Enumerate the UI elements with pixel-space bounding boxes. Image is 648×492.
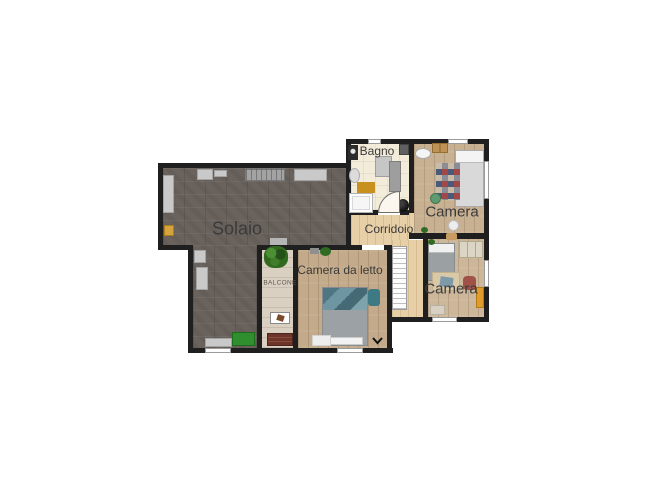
bathtub: [349, 193, 373, 213]
room-label-bagno: Bagno: [360, 144, 395, 158]
wall-bagno-camera-divider: [409, 139, 414, 213]
chevron-door-icon: [372, 336, 383, 345]
storage-crate: [270, 312, 290, 324]
plant: [421, 227, 428, 233]
storage-items: [430, 305, 445, 315]
stairs: [392, 246, 407, 310]
bed-pillow: [456, 151, 483, 163]
wall-balcone-left: [257, 245, 262, 353]
window-camera-bottom-south: [432, 317, 457, 322]
wall-solaio-notch-v: [188, 245, 193, 353]
side-table: [310, 248, 319, 254]
desk-chair: [446, 233, 457, 240]
green-rug: [232, 332, 255, 346]
plant: [428, 239, 435, 245]
shelf: [205, 338, 232, 347]
shelf: [197, 169, 213, 180]
shelf: [194, 250, 206, 263]
wardrobe: [458, 241, 483, 258]
crate-item: [276, 314, 285, 322]
bed-pillow: [429, 244, 454, 253]
room-label-camera-da-letto: Camera da letto: [297, 263, 382, 277]
dresser: [432, 143, 448, 153]
room-label-balcone: BALCONE: [263, 280, 296, 287]
room-label-corridoio: Corridoio: [365, 222, 414, 236]
bench-slab: [270, 238, 287, 245]
window-solaio-south: [205, 348, 231, 353]
room-label-camera-top: Camera: [425, 204, 478, 221]
shelf: [163, 175, 174, 213]
shower-column: [389, 161, 401, 192]
wall-balcone-right: [293, 245, 298, 353]
shelf: [294, 169, 327, 181]
washing-machine: [348, 145, 358, 160]
floorplan: Solaio Bagno Corridoio Camera Camera Cam…: [158, 139, 489, 353]
room-label-solaio: Solaio: [212, 219, 262, 240]
cabinet: [399, 144, 409, 155]
room-label-camera-bottom: Camera: [424, 281, 477, 298]
window-camera-top-right: [484, 161, 489, 199]
bed-pillows: [323, 288, 367, 310]
floorplan-canvas: Solaio Bagno Corridoio Camera Camera Cam…: [0, 0, 648, 492]
plant: [264, 246, 288, 268]
piano: [245, 168, 285, 181]
armchair: [368, 289, 380, 306]
window-letto-south: [337, 348, 363, 353]
bed-footboard: [329, 337, 363, 345]
sink: [349, 168, 360, 183]
cradle: [415, 148, 431, 159]
window-camera-bottom-right: [484, 260, 489, 287]
bath-mat: [357, 182, 375, 193]
shelf: [196, 267, 208, 290]
plant: [320, 247, 331, 256]
window-camera-top-top: [448, 139, 468, 144]
white-rug: [312, 335, 331, 346]
bench: [267, 333, 293, 346]
shelf: [214, 170, 227, 177]
storage-box: [164, 225, 174, 236]
floor-lamp: [448, 220, 459, 231]
pouf: [430, 193, 441, 204]
